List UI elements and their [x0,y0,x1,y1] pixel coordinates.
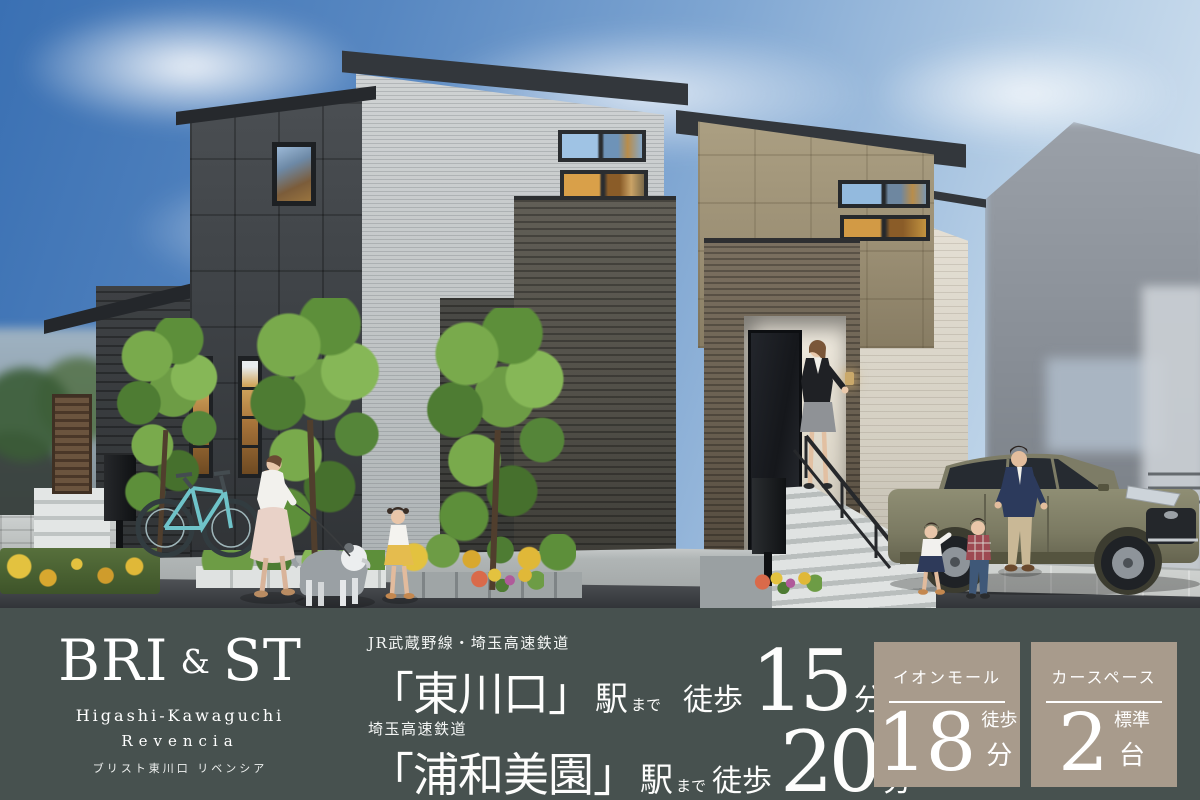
badge-car-space: カースペース 2標準台 [1031,642,1177,787]
logo-right: ST [223,628,302,694]
girl-left [384,507,415,599]
brand-block: BRI&ST Higashi-Kawaguchi Revencia ブリスト東川… [0,608,360,800]
badge-unit-bottom: 台 [1119,735,1145,772]
badge-value: 18 [877,705,975,781]
dog-leash [292,502,350,556]
badge-aeon-mall: イオンモール 18徒歩分 [874,642,1020,787]
badge-value: 2 [1058,705,1107,781]
badge-unit-top: 徒歩 [981,706,1017,732]
woman-walking [250,455,295,597]
badge-title: イオンモール [893,664,1001,688]
to-label-1: まで [631,696,661,714]
station-access-2: 「浦和美園」駅まで徒歩20分 [368,720,913,800]
badge-unit-bottom: 分 [986,735,1012,772]
badge-value-row: 18徒歩分 [877,705,1018,781]
station-suffix-2: 駅 [640,760,673,799]
brand-name-en-line1: Higashi-Kawaguchi [76,706,285,725]
brand-name-jp: ブリスト東川口 リベンシア [93,760,268,776]
exterior-rendering [0,0,1200,608]
bicycle [138,472,258,555]
brand-name-en-line2: Revencia [121,732,238,750]
badge-unit-top: 標準 [1114,706,1150,732]
scene-figures [0,0,1200,608]
walk-minutes-2: 20 [780,713,877,800]
station-name-2: 「浦和美園」 [368,748,638,800]
station-suffix-1: 駅 [595,679,628,718]
badge-title: カースペース [1051,664,1156,688]
walk-label-2: 徒歩 [712,764,772,799]
to-label-2: まで [676,777,706,795]
station-name-1: 「東川口」 [368,667,593,721]
station-access-1: 「東川口」駅まで徒歩15分 [368,639,884,723]
walk-label-1: 徒歩 [683,683,743,718]
logo-ampersand: & [180,642,210,681]
brand-logo: BRI&ST [58,633,302,690]
info-bar: BRI&ST Higashi-Kawaguchi Revencia ブリスト東川… [0,608,1200,800]
badge-value-row: 2標準台 [1058,705,1150,781]
ad-banner: BRI&ST Higashi-Kawaguchi Revencia ブリスト東川… [0,0,1200,800]
logo-left: BRI [58,628,168,694]
